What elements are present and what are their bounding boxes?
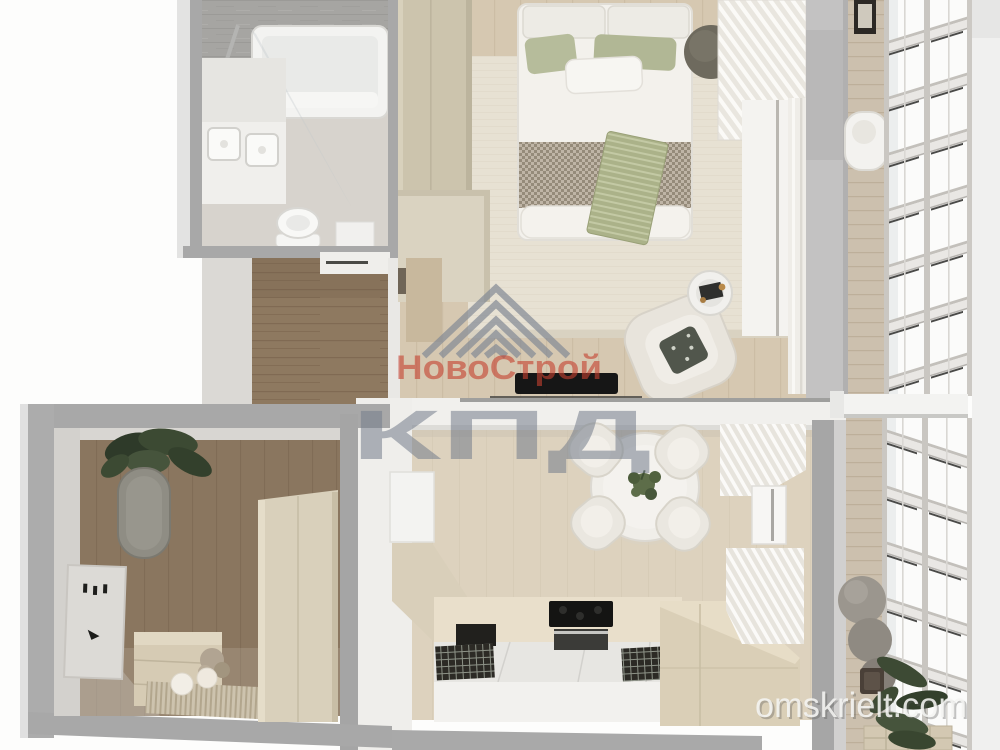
svg-text:НовоСтрой: НовоСтрой [396,349,602,387]
svg-text:omskrielt.com: omskrielt.com [755,686,967,725]
svg-text:КПД: КПД [351,396,652,474]
